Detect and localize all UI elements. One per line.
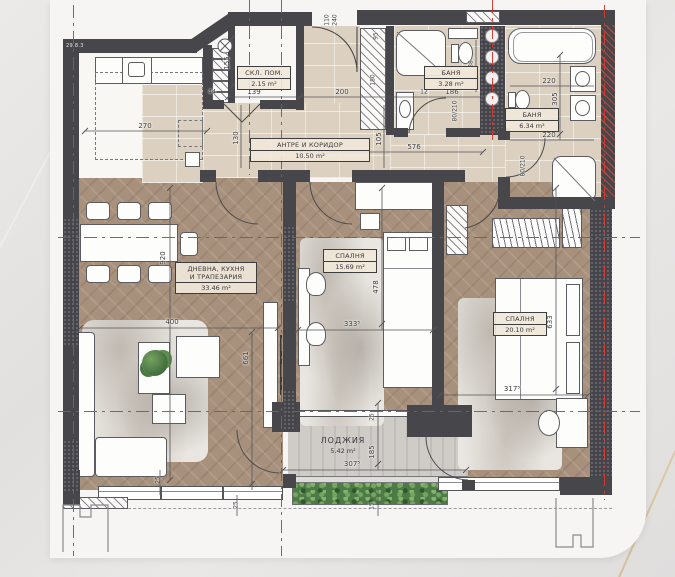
dim-door-bath2: 80/210: [520, 155, 527, 176]
corner-tag: 29.8.3: [66, 43, 84, 49]
dim-corridor-105: 105: [375, 132, 383, 145]
room-area-bath2: 6.34 m²: [506, 121, 558, 132]
room-area-living: 33.46 m²: [176, 283, 256, 294]
dim-shelf-depth: 44: [208, 89, 216, 96]
dim-entry-width: 200: [335, 88, 348, 96]
room-name-loggia: ЛОДЖИЯ: [316, 434, 371, 446]
dim-window-25-left: 25: [155, 476, 162, 484]
dim-entrance-240: 240: [332, 14, 339, 25]
room-label-bath1: БАНЯ 3.28 m²: [424, 66, 478, 90]
dim-bath2-width-top: 220: [542, 77, 555, 85]
room-label-bedroom2: СПАЛНЯ 20.10 m²: [493, 312, 547, 336]
room-area-loggia: 5.42 m²: [316, 446, 371, 457]
column-symbol-right: [556, 498, 593, 547]
room-name-bedroom1: СПАЛНЯ: [324, 250, 376, 262]
room-name-bedroom2: СПАЛНЯ: [494, 313, 546, 325]
room-area-bath1: 3.28 m²: [425, 79, 477, 90]
room-name-living: ДНЕВНА, КУХНЯ И ТРАПЕЗАРИЯ: [176, 263, 256, 283]
axis-vertical-1: [73, 5, 74, 556]
dim-door-bath1: 80/210: [452, 100, 459, 121]
room-label-corridor: АНТРЕ И КОРИДОР 10.50 m²: [250, 138, 370, 162]
room-name-living-line1: ДНЕВНА, КУХНЯ: [181, 265, 251, 273]
dim-storage-depth: 155: [223, 56, 231, 69]
dim-bedroom2-depth: 633: [546, 315, 554, 328]
room-label-bath2: БАНЯ 6.34 m²: [505, 108, 559, 132]
fan-icon: [218, 39, 232, 53]
room-name-bath1: БАНЯ: [425, 67, 477, 79]
dim-corridor-left: 130: [232, 131, 240, 144]
axis-vertical-4: [492, 0, 493, 140]
dim-corridor-length: 576: [407, 143, 420, 151]
dim-wardrobe-180: 180: [370, 74, 377, 85]
floor-plan-canvas: СКЛ. ПОМ. 2.15 m² БАНЯ 3.28 m² БАНЯ 6.34…: [0, 0, 675, 577]
room-label-living: ДНЕВНА, КУХНЯ И ТРАПЕЗАРИЯ 33.46 m²: [175, 262, 257, 294]
dim-window-25-mid: 25: [233, 501, 240, 509]
axis-vertical-5: [604, 5, 605, 500]
dim-bedroom1-width: 333⁵: [344, 320, 360, 328]
dim-loggia-width: 307⁵: [344, 460, 360, 468]
room-area-corridor: 10.50 m²: [251, 151, 369, 162]
dim-kitchen-width: 270: [138, 122, 151, 130]
room-label-loggia: ЛОДЖИЯ 5.42 m²: [316, 434, 371, 456]
column-symbol-left: [63, 505, 108, 552]
room-area-storage: 2.15 m²: [238, 79, 290, 90]
dim-bedroom1-depth: 478: [372, 280, 380, 293]
room-label-storage: СКЛ. ПОМ. 2.15 m²: [237, 66, 291, 90]
dim-living-width: 400: [165, 318, 178, 326]
room-name-storage: СКЛ. ПОМ.: [238, 67, 290, 79]
room-name-living-line2: И ТРАПЕЗАРИЯ: [181, 273, 251, 281]
dim-bedroom2-width: 317⁵: [504, 385, 520, 393]
dim-bath2-width-bottom: 220: [542, 131, 555, 139]
dim-entrance-110: 110: [324, 14, 331, 25]
entrance-door-arc: [312, 27, 357, 72]
room-area-bedroom2: 20.10 m²: [494, 325, 546, 336]
room-area-bedroom1: 15.69 m²: [324, 262, 376, 273]
room-name-bath2: БАНЯ: [506, 109, 558, 121]
axis-horizontal-2: [58, 411, 640, 412]
dim-living-661: 661: [242, 351, 250, 364]
dim-loggia-15: 15: [369, 502, 376, 510]
linework-overlay: [0, 0, 675, 577]
storage-folding-door: [224, 104, 260, 122]
dim-living-height: 920: [159, 251, 167, 264]
dim-wardrobe-95: 95: [373, 32, 380, 40]
axis-horizontal-1: [58, 237, 640, 238]
room-label-bedroom1: СПАЛНЯ 15.69 m²: [323, 249, 377, 273]
dim-bath2-depth: 305: [551, 92, 559, 105]
dim-loggia-25: 25: [369, 413, 376, 421]
room-name-corridor: АНТРЕ И КОРИДОР: [251, 139, 369, 151]
